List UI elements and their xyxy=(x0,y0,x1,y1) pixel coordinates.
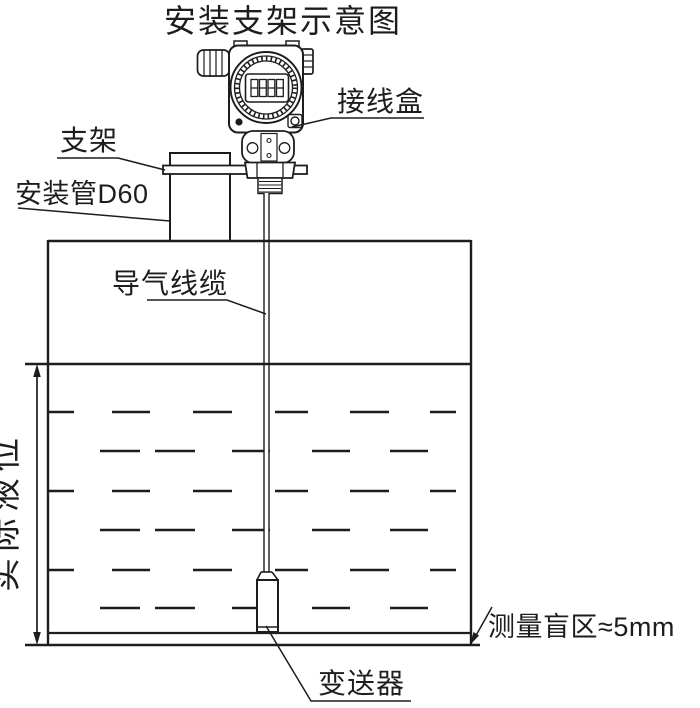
arrowhead-up-icon xyxy=(33,364,41,377)
screw-icon xyxy=(235,118,242,125)
air-cable-label: 导气线缆 xyxy=(112,268,228,299)
level-dimension-arrow xyxy=(33,364,41,645)
liquid-dashes xyxy=(48,412,456,608)
actual-level-label: 实际液位 xyxy=(0,432,24,592)
air-cable-leader xyxy=(147,300,266,314)
junction-box-leader xyxy=(292,118,424,127)
hex-nut xyxy=(245,163,295,179)
mounting-pipe-leader xyxy=(18,208,170,221)
threaded-stub xyxy=(258,178,282,194)
neck-adapter xyxy=(242,131,294,163)
junction-box-label: 接线盒 xyxy=(337,86,424,117)
diagram-labels: 安装支架示意图 支架 安装管D60 接线盒 导气线缆 实际液位 测量盲区≈5mm… xyxy=(0,3,675,699)
transmitter-label: 变送器 xyxy=(318,668,405,699)
arrowhead-down-icon xyxy=(33,632,41,645)
bracket-leader xyxy=(57,158,165,170)
blind-zone-label: 测量盲区≈5mm xyxy=(488,612,675,642)
tank-outline xyxy=(25,240,480,645)
bracket-label: 支架 xyxy=(60,125,118,156)
probe-transmitter xyxy=(257,572,278,632)
tab-screw-icon xyxy=(291,117,299,125)
lcd-display xyxy=(246,74,289,102)
page-title: 安装支架示意图 xyxy=(164,3,402,39)
installation-diagram: 安装支架示意图 支架 安装管D60 接线盒 导气线缆 实际液位 测量盲区≈5mm… xyxy=(0,0,700,708)
diagram-canvas: 安装支架示意图 支架 安装管D60 接线盒 导气线缆 实际液位 测量盲区≈5mm… xyxy=(0,0,700,708)
air-guide-cable xyxy=(264,193,269,572)
cable-gland-icon xyxy=(198,49,230,77)
mounting-pipe-label: 安装管D60 xyxy=(15,179,149,209)
